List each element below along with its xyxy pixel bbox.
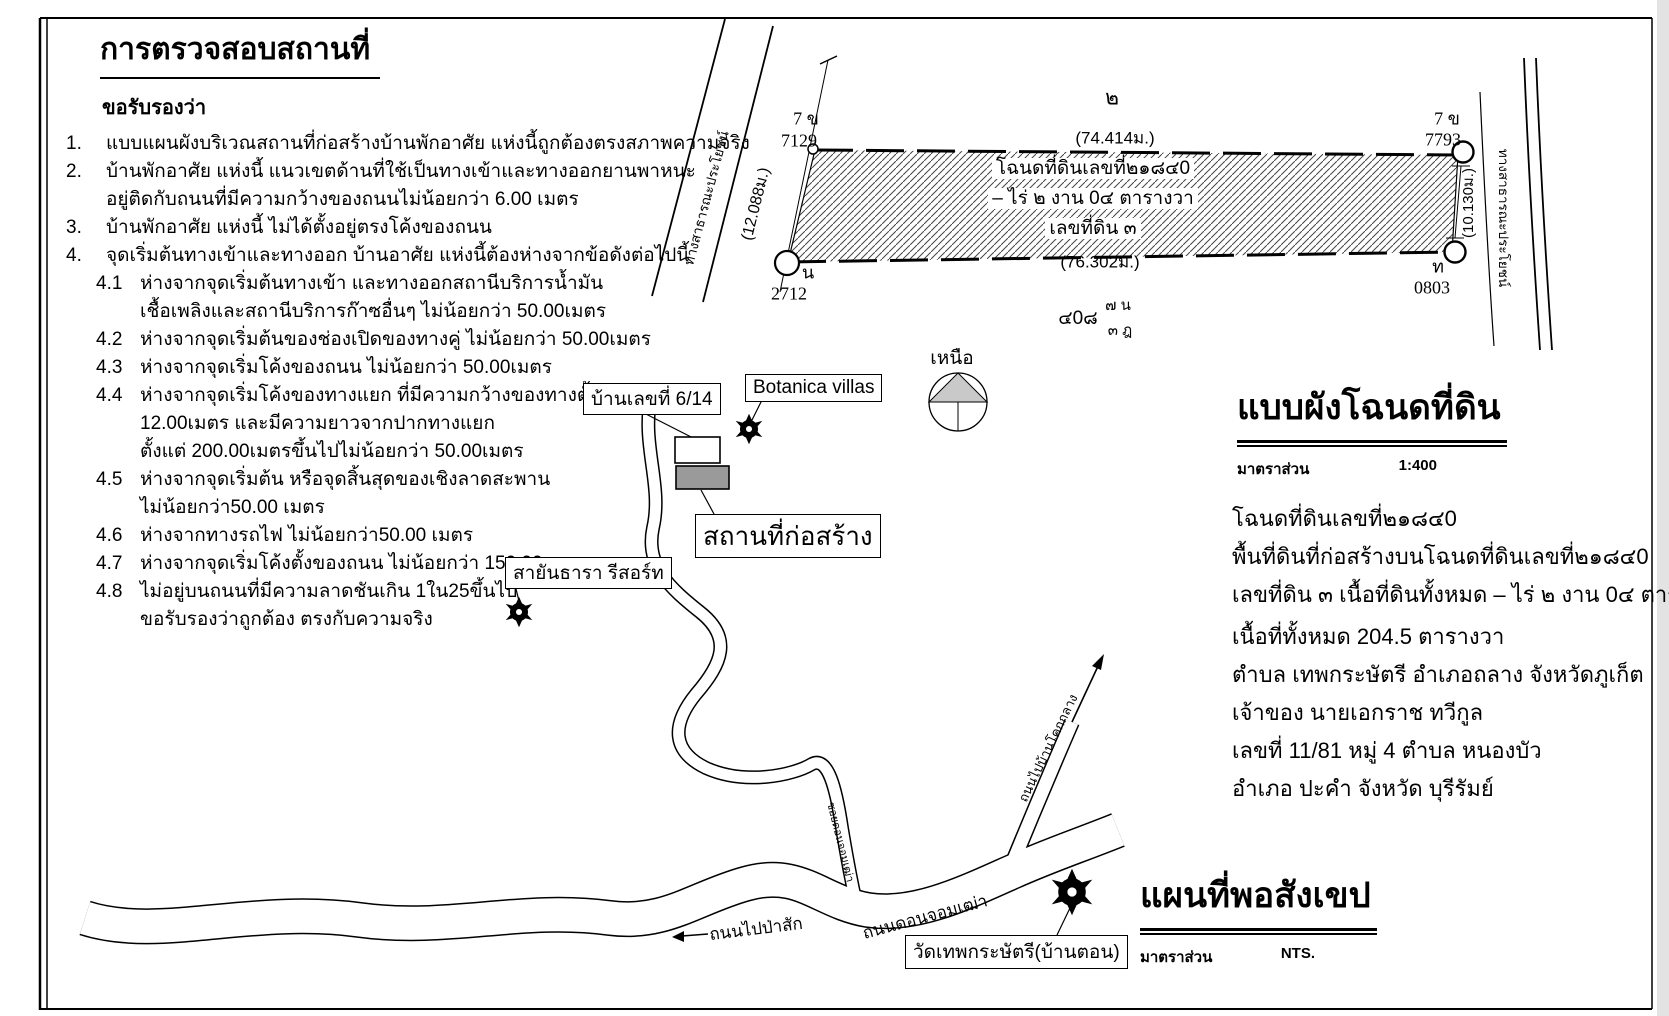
survey-note-lower: ๓ ฎ (1108, 318, 1133, 342)
deed-info-line: เลขที่ 11/81 หมู่ 4 ตำบล หนองบัว (1232, 732, 1669, 770)
deed-info-line: เลขที่ดิน ๓ เนื้อที่ดินทั้งหมด – ไร่ ๒ ง… (1232, 576, 1669, 614)
marker-number-bottom-right: 0803 (1414, 278, 1450, 299)
dimension-bottom: (76.302ม.) (1060, 249, 1139, 276)
cert-item-1: 1. แบบแผนผังบริเวณสถานที่ก่อสร้างบ้านพัก… (56, 130, 716, 158)
cert-item-4-2: 4.2 ห่างจากจุดเริ่มต้นของช่องเปิดของทางค… (96, 326, 716, 354)
sketch-scale-value: NTS. (1281, 945, 1315, 969)
landmark-star-icon-temple (1052, 869, 1093, 915)
marker-type-bottom-right: ท (1432, 252, 1444, 281)
compass-north-label: เหนือ (930, 343, 973, 373)
page-title: การตรวจสอบสถานที่ (100, 26, 380, 79)
cert-item-4-5: 4.5 ห่างจากจุดเริ่มต้น หรือจุดสิ้นสุดของ… (96, 466, 716, 522)
cert-item-4: 4. จุดเริ่มต้นทางเข้าและทางออก บ้านอาศัย… (56, 242, 716, 270)
marker-circle-0803 (1445, 242, 1466, 263)
deed-info-line: โฉนดที่ดินเลขที่๒๑๘๔0 (1232, 500, 1669, 538)
landmark-star-icon-botanica (736, 414, 763, 444)
public-road-right (1480, 58, 1552, 350)
certify-subtitle: ขอรับรองว่า (102, 91, 716, 123)
dimension-top: (74.414ม.) (1075, 125, 1154, 152)
adjacent-parcel-number: ๒ (1105, 82, 1119, 115)
marker-type-top-left: 7 ข (793, 104, 819, 133)
marker-number-top-right: 7793 (1425, 130, 1461, 151)
temple-label: วัดเทพกระษัตรี(บ้านตอน) (905, 935, 1128, 969)
deed-scale-label: มาตราส่วน (1237, 457, 1309, 481)
deed-info-line: เจ้าของ นายเอกราช ทวีกูล (1232, 694, 1669, 732)
construction-site-label: สถานที่ก่อสร้าง (695, 514, 881, 558)
cert-item-4-1: 4.1 ห่างจากจุดเริ่มต้นทางเข้า และทางออกส… (96, 270, 716, 326)
parcel-deed-text: โฉนดที่ดินเลขที่๒๑๘๔0 – ไร่ ๒ งาน 0๔ ตาร… (983, 154, 1203, 244)
survey-note-upper: ๗ น (1105, 293, 1131, 317)
deed-info-line: ตำบล เทพกระษัตรี อำเภอถลาง จังหวัดภูเก็ต (1232, 656, 1669, 694)
marker-type-bottom-left: น (802, 258, 814, 287)
sketch-map-title-block: แผนที่พอสังเขป มาตราส่วน NTS. (1140, 868, 1377, 969)
sketch-scale-label: มาตราส่วน (1140, 945, 1212, 969)
deed-plan-title: แบบผังโฉนดที่ดิน (1237, 380, 1507, 443)
dimension-right: (10.130ม.) (1456, 168, 1480, 238)
botanica-villas-label: Botanica villas (745, 374, 882, 402)
resort-label: สายันธารา รีสอร์ท (505, 557, 672, 589)
cert-item-4-6: 4.6 ห่างจากทางรถไฟ ไม่น้อยกว่า50.00 เมตร (96, 522, 716, 550)
survey-sheet: การตรวจสอบสถานที่ ขอรับรองว่า 1. แบบแผนผ… (0, 0, 1669, 1016)
north-compass (929, 373, 987, 431)
certification-block: การตรวจสอบสถานที่ ขอรับรองว่า 1. แบบแผนผ… (56, 26, 716, 634)
marker-number-top-left: 7129 (781, 131, 817, 152)
road-arrow-to-pasak (672, 931, 708, 942)
marker-type-top-right: 7 ข (1434, 104, 1460, 133)
cert-item-4-3: 4.3 ห่างจากจุดเริ่มโค้งของถนน ไม่น้อยกว่… (96, 354, 716, 382)
deed-info-block: โฉนดที่ดินเลขที่๒๑๘๔0 พื้นที่ดินที่ก่อสร… (1232, 500, 1669, 808)
public-road-right-label: ทางสาธารณะประโยชน์ (1493, 149, 1515, 287)
marker-circle-2712 (775, 251, 799, 275)
cert-item-3: 3. บ้านพักอาศัย แห่งนี้ ไม่ได้ตั้งอยู่ตร… (56, 214, 716, 242)
deed-plan-title-block: แบบผังโฉนดที่ดิน มาตราส่วน 1:400 (1237, 380, 1507, 481)
marker-number-bottom-left: 2712 (771, 284, 807, 305)
survey-note-main: ๔0๘ (1058, 303, 1098, 333)
deed-info-line: อำเภอ ปะคำ จังหวัด บุรีรัมย์ (1232, 770, 1669, 808)
sketch-map-title: แผนที่พอสังเขป (1140, 868, 1377, 931)
deed-scale-value: 1:400 (1399, 457, 1437, 481)
house-number-label: บ้านเลขที่ 6/14 (583, 383, 721, 415)
deed-info-line: พื้นที่ดินที่ก่อสร้างบนโฉนดที่ดินเลขที่๒… (1232, 538, 1669, 576)
deed-info-line: เนื้อที่ทั้งหมด 204.5 ตารางวา (1232, 618, 1669, 656)
cert-item-2: 2. บ้านพักอาศัย แห่งนี้ แนวเขตด้านที่ใช้… (56, 158, 716, 214)
